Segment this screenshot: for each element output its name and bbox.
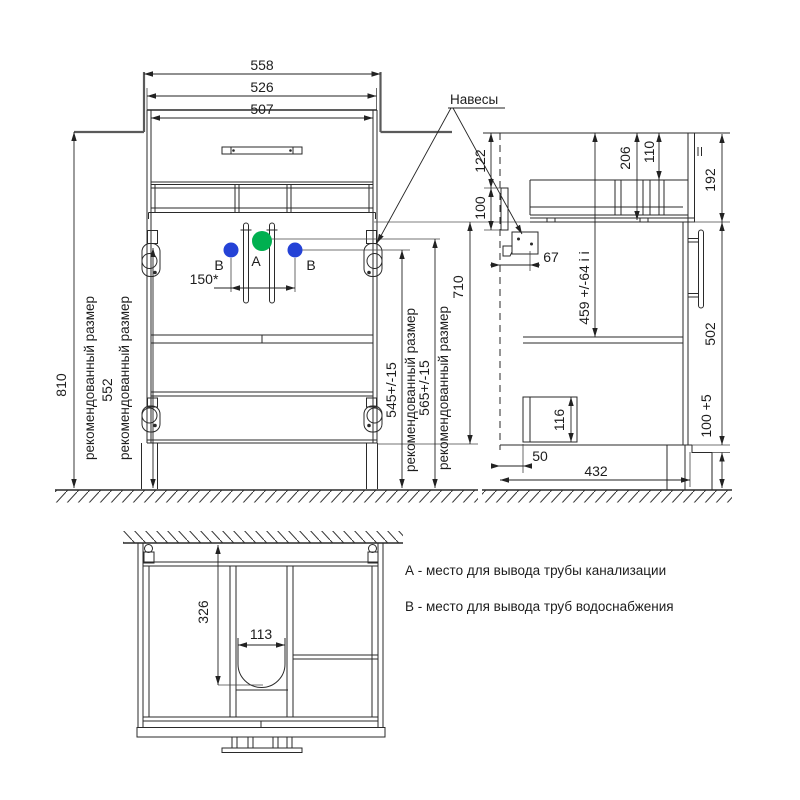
cabinet-plan [137,543,385,753]
dim-hanger-height-note: рекомендованный размер [117,296,132,460]
floor-front [55,490,478,503]
dim-326-value: 326 [195,600,211,624]
dim-67-value: 67 [543,249,559,265]
dim-459-value: 459 +/-64 i i [576,251,592,325]
cabinet-front [142,110,378,489]
bracket-plan-left [144,545,154,564]
dim-cabinet-width-value: 526 [250,79,274,95]
dim-110-value: 110 [641,141,657,164]
dim-502-value: 502 [702,322,718,346]
dim-hanger-height: 552 рекомендованный размер [99,248,153,488]
wall-plan [123,531,403,543]
dim-b-height: 545+/-15 рекомендованный размер [383,250,418,488]
dim-b-spacing-value: 150* [190,271,219,287]
dim-122-value: 122 [472,149,488,173]
outlet-b-marker-right [288,243,303,258]
legend-line-a: А - место для вывода трубы канализации [405,563,666,578]
dim-b-height-value: 545+/-15 [383,362,399,418]
siphon-box-side [523,397,577,442]
dim-niche-height-value: 810 [53,373,69,397]
dim-a-height-note: рекомендованный размер [436,306,451,470]
outlet-a-marker [252,231,272,251]
outlet-b-right-label: В [306,257,315,273]
dim-niche-height: 810 рекомендованный размер [53,132,97,488]
drawer-handle [222,147,302,154]
floor-hatch-front [55,491,478,503]
feet-plan [222,737,302,753]
dim-192-value: 192 [702,168,718,192]
front-plinth-step [692,445,712,490]
hanger-bracket-side [503,232,538,256]
front-view: 558 526 507 [53,57,530,503]
dim-a-height: 565+/-15 рекомендованный размер [416,239,451,488]
dim-overall-width: 558 [144,57,381,74]
dim-110: 110 [641,133,659,180]
dim-50-value: 50 [532,448,548,464]
dim-drawer-width-value: 507 [250,101,274,117]
dim-hanger-height-value: 552 [99,378,115,402]
outlet-b-marker-left [224,243,239,258]
dim-niche-height-note: рекомендованный размер [82,296,97,460]
dim-113: 113 [238,626,285,645]
bottom-plan-view: 326 113 [123,531,403,753]
dim-459: 459 +/-64 i i [576,133,595,337]
dim-113-value: 113 [250,626,273,642]
dim-100-value: 100 [472,196,488,220]
outlet-markers: В А В [214,231,315,273]
dim-206-value: 206 [617,146,633,170]
dim-a-height-value: 565+/-15 [416,360,432,416]
dim-100p5-value: 100 +5 [698,394,714,437]
wall-mounting-strip [501,188,508,230]
bracket-plan-right [368,545,378,564]
drawer-handle-side [698,147,702,156]
dim-116: 116 [551,397,571,442]
installation-drawing-page: 558 526 507 [0,0,800,800]
dim-122: 122 [472,133,501,188]
dim-cabinet-height: 710 [450,222,470,444]
dim-432-value: 432 [584,463,608,479]
hangers-leader-left [377,108,451,243]
frame-band [149,185,376,220]
wall-hatch [123,531,403,543]
dim-100p5: 100 +5 [698,394,730,488]
front-panel-plan [137,728,385,738]
hangers-callout-label: Навесы [450,92,498,107]
dim-100: 100 [472,188,501,230]
dim-192: 192 [690,134,730,222]
dim-b-spacing: 150* [190,258,295,292]
floor-hatch-side [482,491,732,503]
door-handle-side [688,230,704,308]
side-view: 122 100 67 206 110 459 +/-64 i i [472,133,732,503]
dim-116-value: 116 [551,409,567,432]
legend: А - место для вывода трубы канализации В… [405,563,674,614]
outlet-a-label: А [251,253,261,269]
installation-drawing: 558 526 507 [0,0,800,800]
dim-cabinet-height-value: 710 [450,275,466,299]
floor-side [482,490,732,503]
dim-overall-width-value: 558 [250,57,274,73]
dim-432: 432 [500,452,690,487]
legend-line-b: В - место для вывода труб водоснабжения [405,599,674,614]
top-section-side [530,133,695,222]
